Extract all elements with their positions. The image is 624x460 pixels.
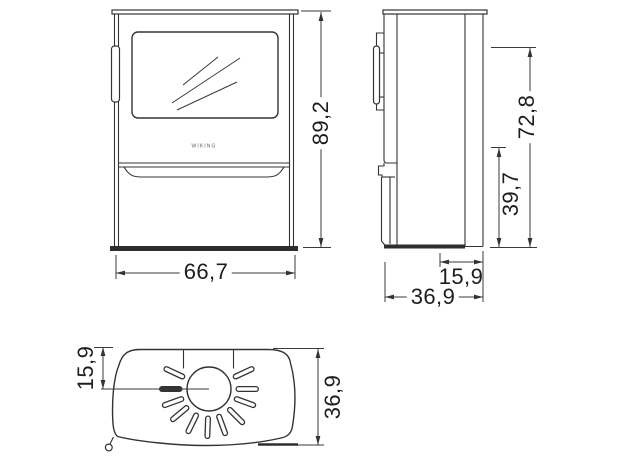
dim-side-depth: 36,9 [407,285,459,309]
dim-side-lower-height: 39,7 [500,172,522,216]
handle-grip-bar [374,46,380,104]
glass-reflection-line [177,82,237,110]
handle-knob-top [105,444,112,451]
top-view-outline [113,350,295,446]
dim-front-height: 89,2 [309,97,333,149]
dim-front-width: 66,7 [180,260,232,284]
side-view-drawing [374,10,488,249]
front-top-plate [112,10,298,14]
dim-side-upper-height: 72,8 [515,91,539,143]
side-top-plate [383,10,487,14]
side-base [384,245,465,249]
door-glass-window [132,32,278,118]
front-view-dimensions [116,11,331,279]
dim-top-flue-offset: 15,9 [75,346,97,390]
stove-dimension-drawing: 89,2 66,7 72,8 39,7 15,9 36,9 15,9 36,9 … [0,0,624,460]
vent-slots [162,369,256,436]
drawing-linework [0,0,624,460]
brand-logo-text: WIKING [192,145,217,150]
drawer-recess-groove [124,167,284,177]
top-view-drawing [101,350,324,451]
front-base [110,246,298,251]
door-handle-front [112,46,120,102]
dim-top-depth: 36,9 [322,375,344,419]
front-view-drawing [110,10,298,251]
glass-reflection-line [183,57,218,85]
